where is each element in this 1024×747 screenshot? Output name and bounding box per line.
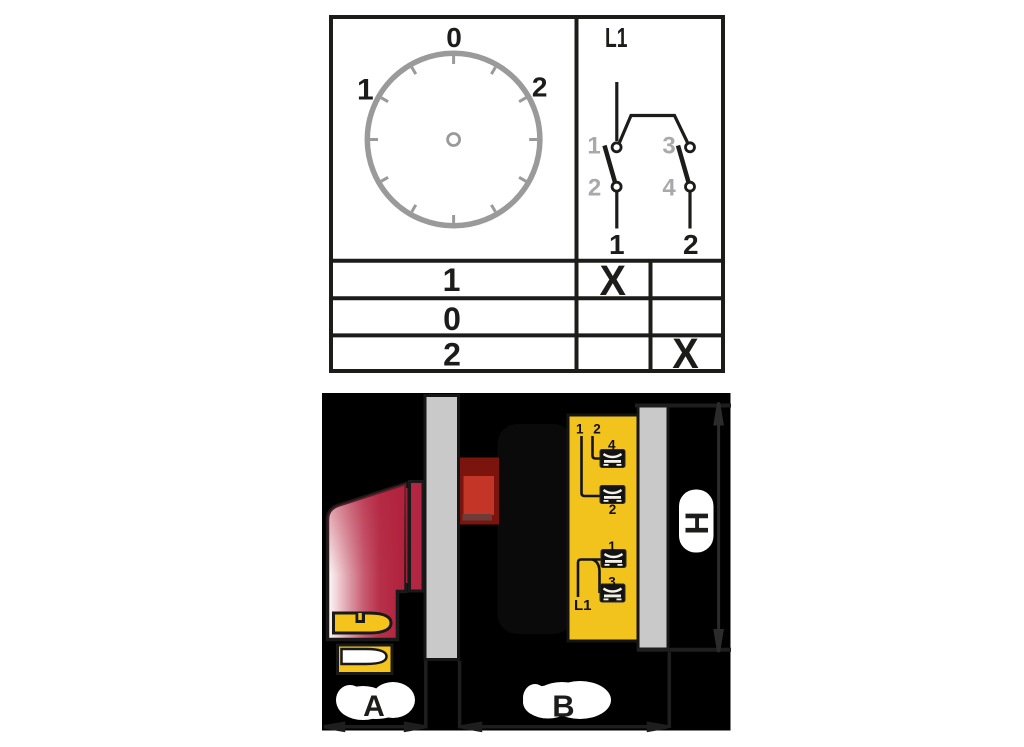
- svg-text:3: 3: [662, 133, 675, 160]
- svg-text:2: 2: [609, 502, 617, 517]
- svg-text:4: 4: [608, 437, 616, 452]
- svg-text:2: 2: [443, 337, 461, 373]
- svg-text:L1: L1: [605, 22, 628, 53]
- svg-text:1: 1: [576, 422, 584, 437]
- svg-text:3: 3: [608, 574, 616, 589]
- svg-text:4: 4: [662, 174, 676, 201]
- svg-text:2: 2: [532, 72, 548, 103]
- svg-text:0: 0: [443, 301, 461, 337]
- svg-text:A: A: [363, 690, 385, 723]
- svg-text:2: 2: [683, 229, 699, 260]
- svg-text:H: H: [679, 511, 715, 534]
- svg-text:1: 1: [609, 229, 625, 260]
- svg-text:L1: L1: [574, 597, 592, 614]
- svg-text:B: B: [552, 689, 574, 724]
- svg-text:X: X: [600, 257, 627, 305]
- svg-text:1: 1: [587, 133, 600, 160]
- svg-text:1: 1: [608, 539, 616, 554]
- svg-text:1: 1: [357, 74, 374, 107]
- svg-text:2: 2: [593, 422, 601, 437]
- svg-text:0: 0: [446, 22, 462, 53]
- svg-text:1: 1: [443, 262, 461, 298]
- svg-text:X: X: [672, 330, 699, 378]
- svg-text:2: 2: [588, 174, 601, 201]
